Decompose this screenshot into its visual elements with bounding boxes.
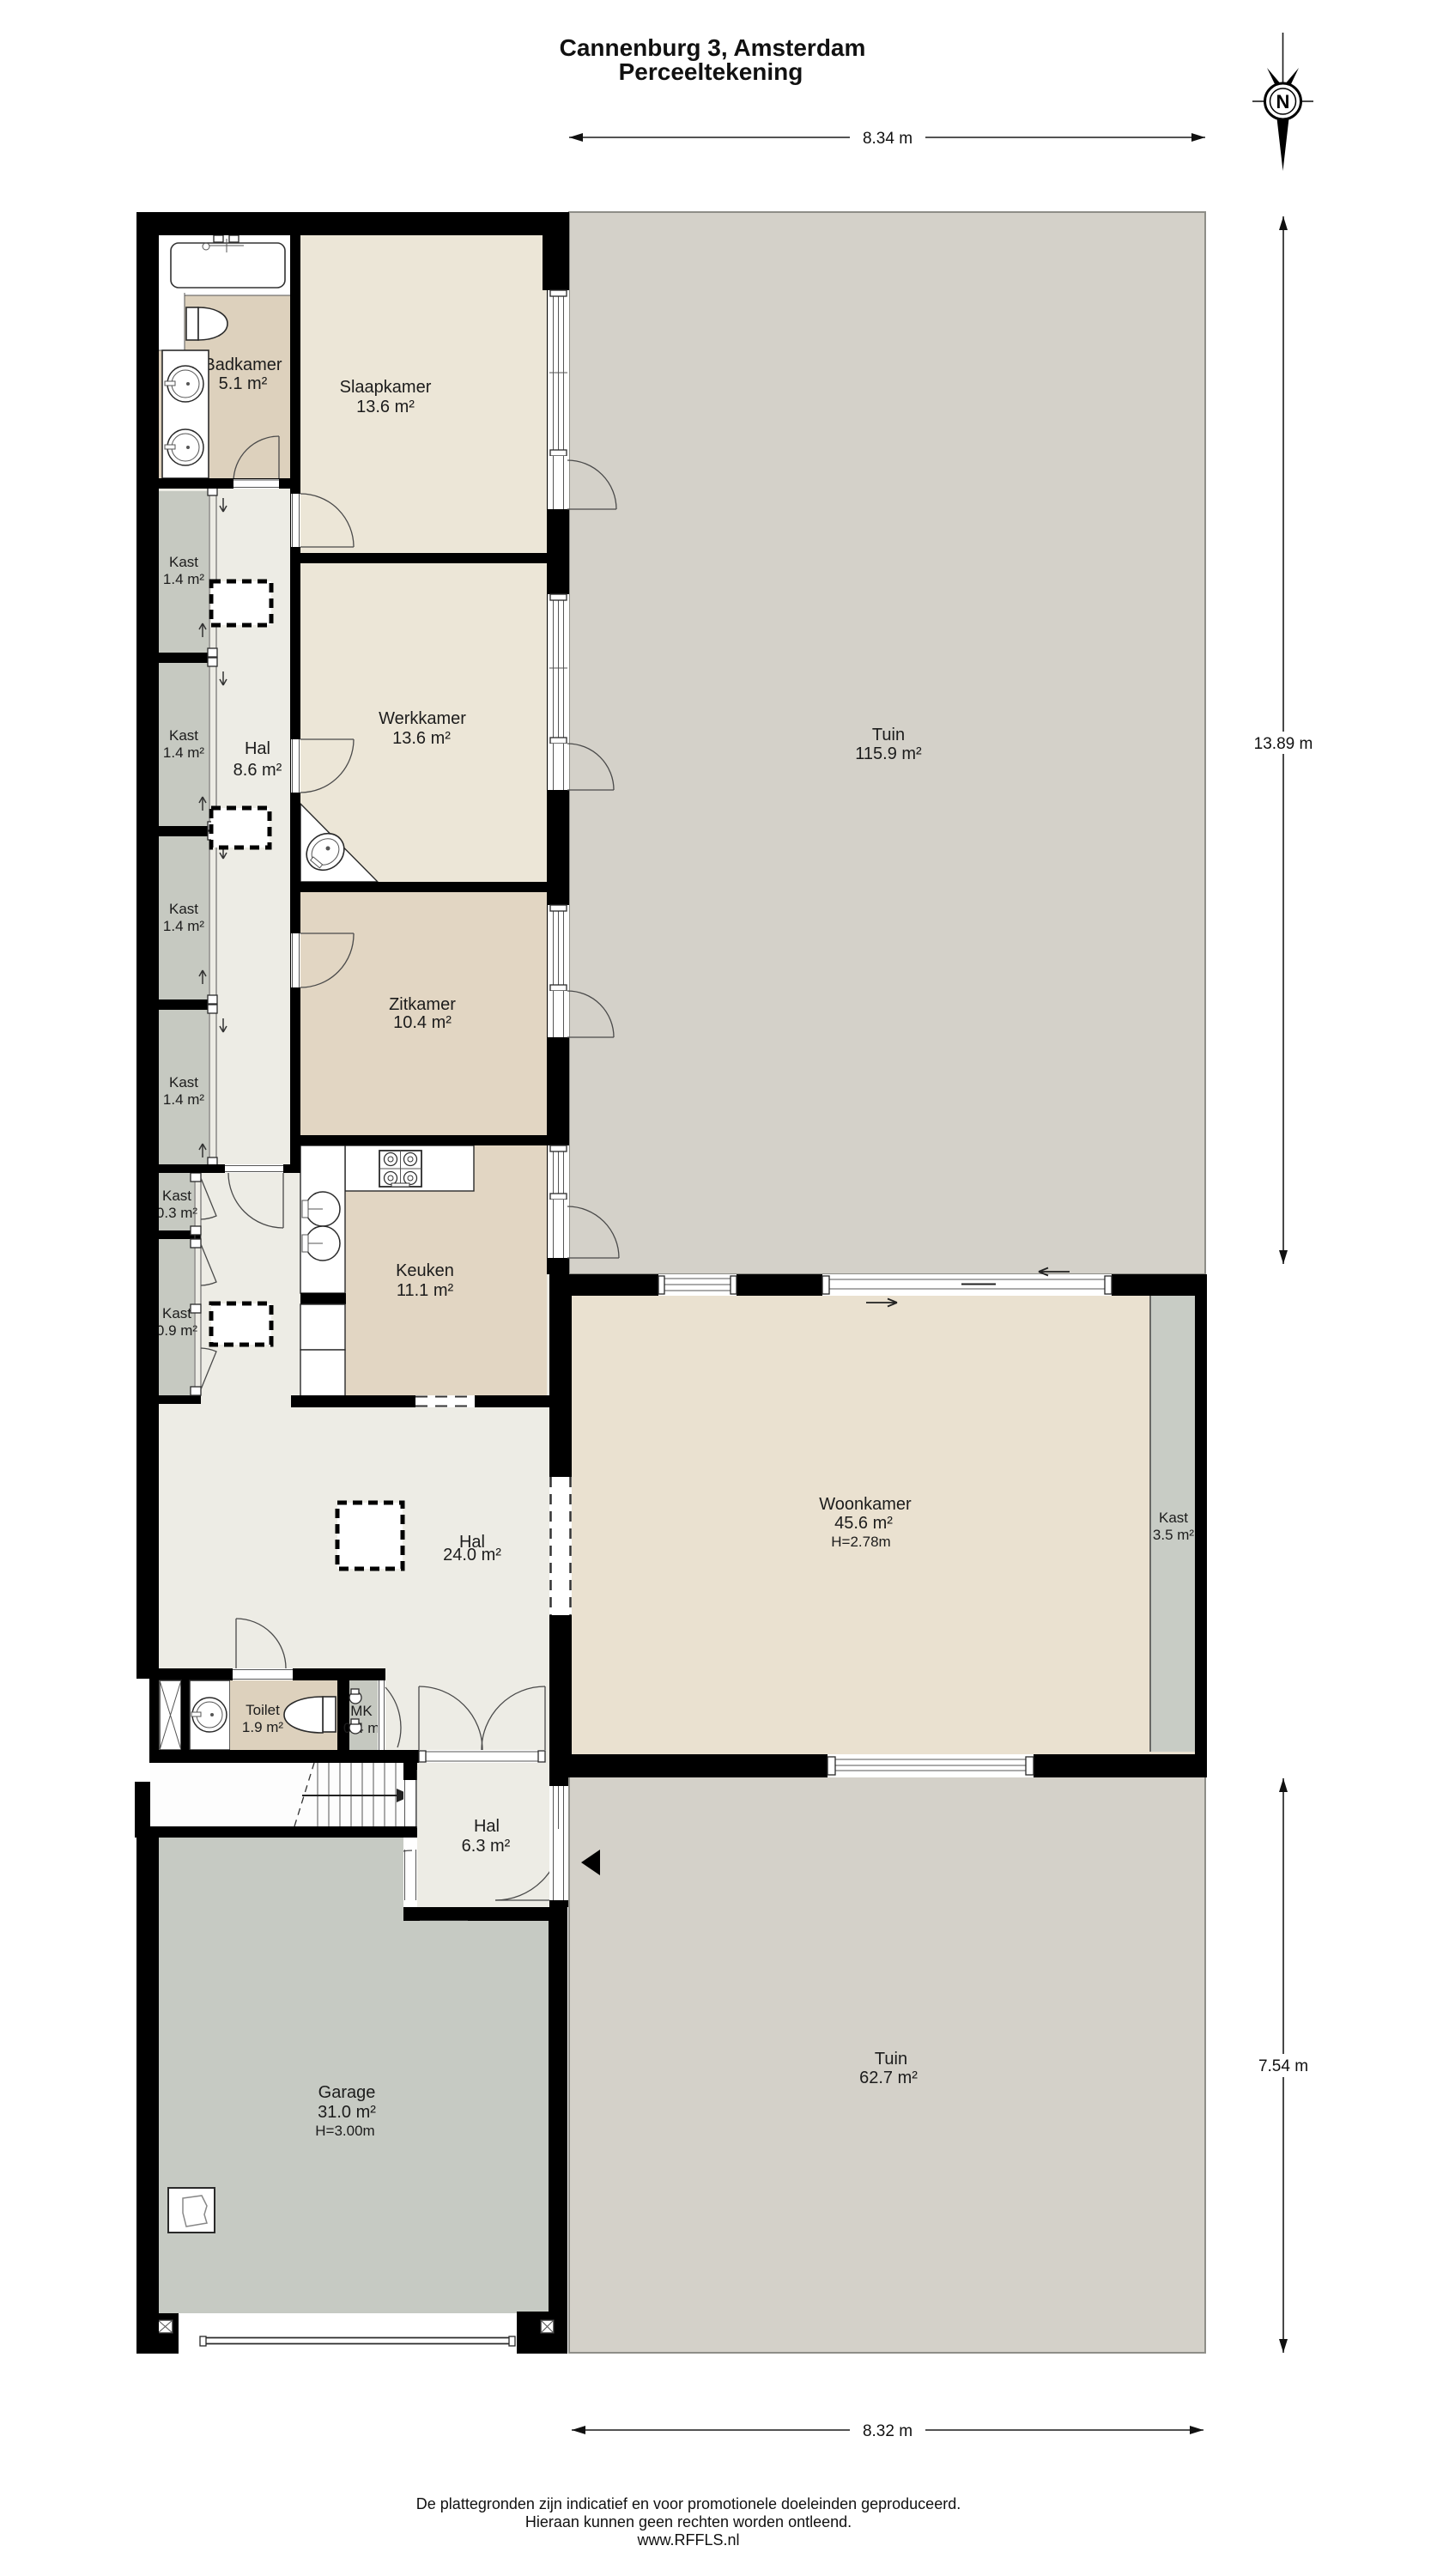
svg-text:31.0 m²: 31.0 m² — [318, 2103, 376, 2122]
svg-text:Perceeltekening: Perceeltekening — [619, 58, 803, 85]
svg-text:Toilet: Toilet — [246, 1702, 280, 1718]
svg-text:Garage: Garage — [318, 2083, 376, 2102]
svg-text:Kast: Kast — [162, 1188, 191, 1204]
svg-text:Kast: Kast — [1159, 1510, 1188, 1526]
svg-text:0.9 m²: 0.9 m² — [156, 1322, 198, 1339]
svg-text:De plattegronden zijn indicati: De plattegronden zijn indicatief en voor… — [416, 2495, 961, 2512]
svg-text:Hal: Hal — [245, 739, 270, 758]
svg-text:MK: MK — [350, 1703, 373, 1719]
svg-text:0.3 m²: 0.3 m² — [156, 1205, 198, 1221]
svg-text:5.1 m²: 5.1 m² — [219, 374, 268, 393]
svg-text:7.54 m: 7.54 m — [1258, 2057, 1308, 2075]
svg-text:1.4 m²: 1.4 m² — [163, 744, 205, 761]
svg-text:Tuin: Tuin — [875, 2050, 907, 2069]
svg-text:Keuken: Keuken — [396, 1261, 454, 1280]
svg-text:www.RFFLS.nl: www.RFFLS.nl — [636, 2531, 739, 2549]
svg-text:3.5 m²: 3.5 m² — [1153, 1527, 1195, 1543]
svg-text:1.4 m²: 1.4 m² — [163, 918, 205, 934]
svg-text:13.6 m²: 13.6 m² — [392, 729, 451, 748]
svg-text:115.9 m²: 115.9 m² — [855, 744, 922, 763]
svg-text:Kast: Kast — [169, 901, 198, 917]
svg-text:Kast: Kast — [169, 1074, 198, 1091]
svg-text:H=2.78m: H=2.78m — [831, 1534, 890, 1550]
svg-text:45.6 m²: 45.6 m² — [834, 1514, 893, 1533]
svg-text:11.1 m²: 11.1 m² — [397, 1281, 454, 1300]
svg-text:Kast: Kast — [169, 727, 198, 744]
svg-text:6.3 m²: 6.3 m² — [462, 1837, 511, 1856]
svg-text:Kast: Kast — [169, 554, 198, 570]
svg-text:13.89 m: 13.89 m — [1254, 735, 1313, 753]
svg-text:62.7 m²: 62.7 m² — [859, 2069, 918, 2087]
svg-text:N: N — [1276, 91, 1290, 112]
svg-text:Badkamer: Badkamer — [203, 355, 282, 374]
svg-text:13.6 m²: 13.6 m² — [356, 398, 415, 416]
svg-text:Kast: Kast — [162, 1305, 191, 1321]
svg-text:10.4 m²: 10.4 m² — [393, 1013, 452, 1032]
svg-text:24.0 m²: 24.0 m² — [443, 1546, 501, 1564]
svg-text:8.32 m: 8.32 m — [863, 2422, 912, 2440]
svg-text:1.9 m²: 1.9 m² — [242, 1719, 284, 1735]
svg-text:Hal: Hal — [474, 1817, 500, 1836]
svg-text:Cannenburg 3, Amsterdam: Cannenburg 3, Amsterdam — [560, 34, 866, 61]
svg-text:1.4 m²: 1.4 m² — [163, 571, 205, 587]
svg-text:Hieraan kunnen geen rechten wo: Hieraan kunnen geen rechten worden ontle… — [525, 2513, 852, 2530]
svg-text:Woonkamer: Woonkamer — [819, 1495, 912, 1514]
svg-text:8.6 m²: 8.6 m² — [233, 761, 282, 780]
svg-text:Slaapkamer: Slaapkamer — [340, 378, 432, 397]
svg-text:1.4 m²: 1.4 m² — [163, 1091, 205, 1108]
svg-text:Werkkamer: Werkkamer — [379, 709, 466, 728]
svg-text:Zitkamer: Zitkamer — [389, 995, 456, 1014]
svg-text:Tuin: Tuin — [872, 726, 905, 744]
svg-text:8.34 m: 8.34 m — [863, 130, 912, 148]
svg-text:H=3.00m: H=3.00m — [315, 2123, 374, 2139]
